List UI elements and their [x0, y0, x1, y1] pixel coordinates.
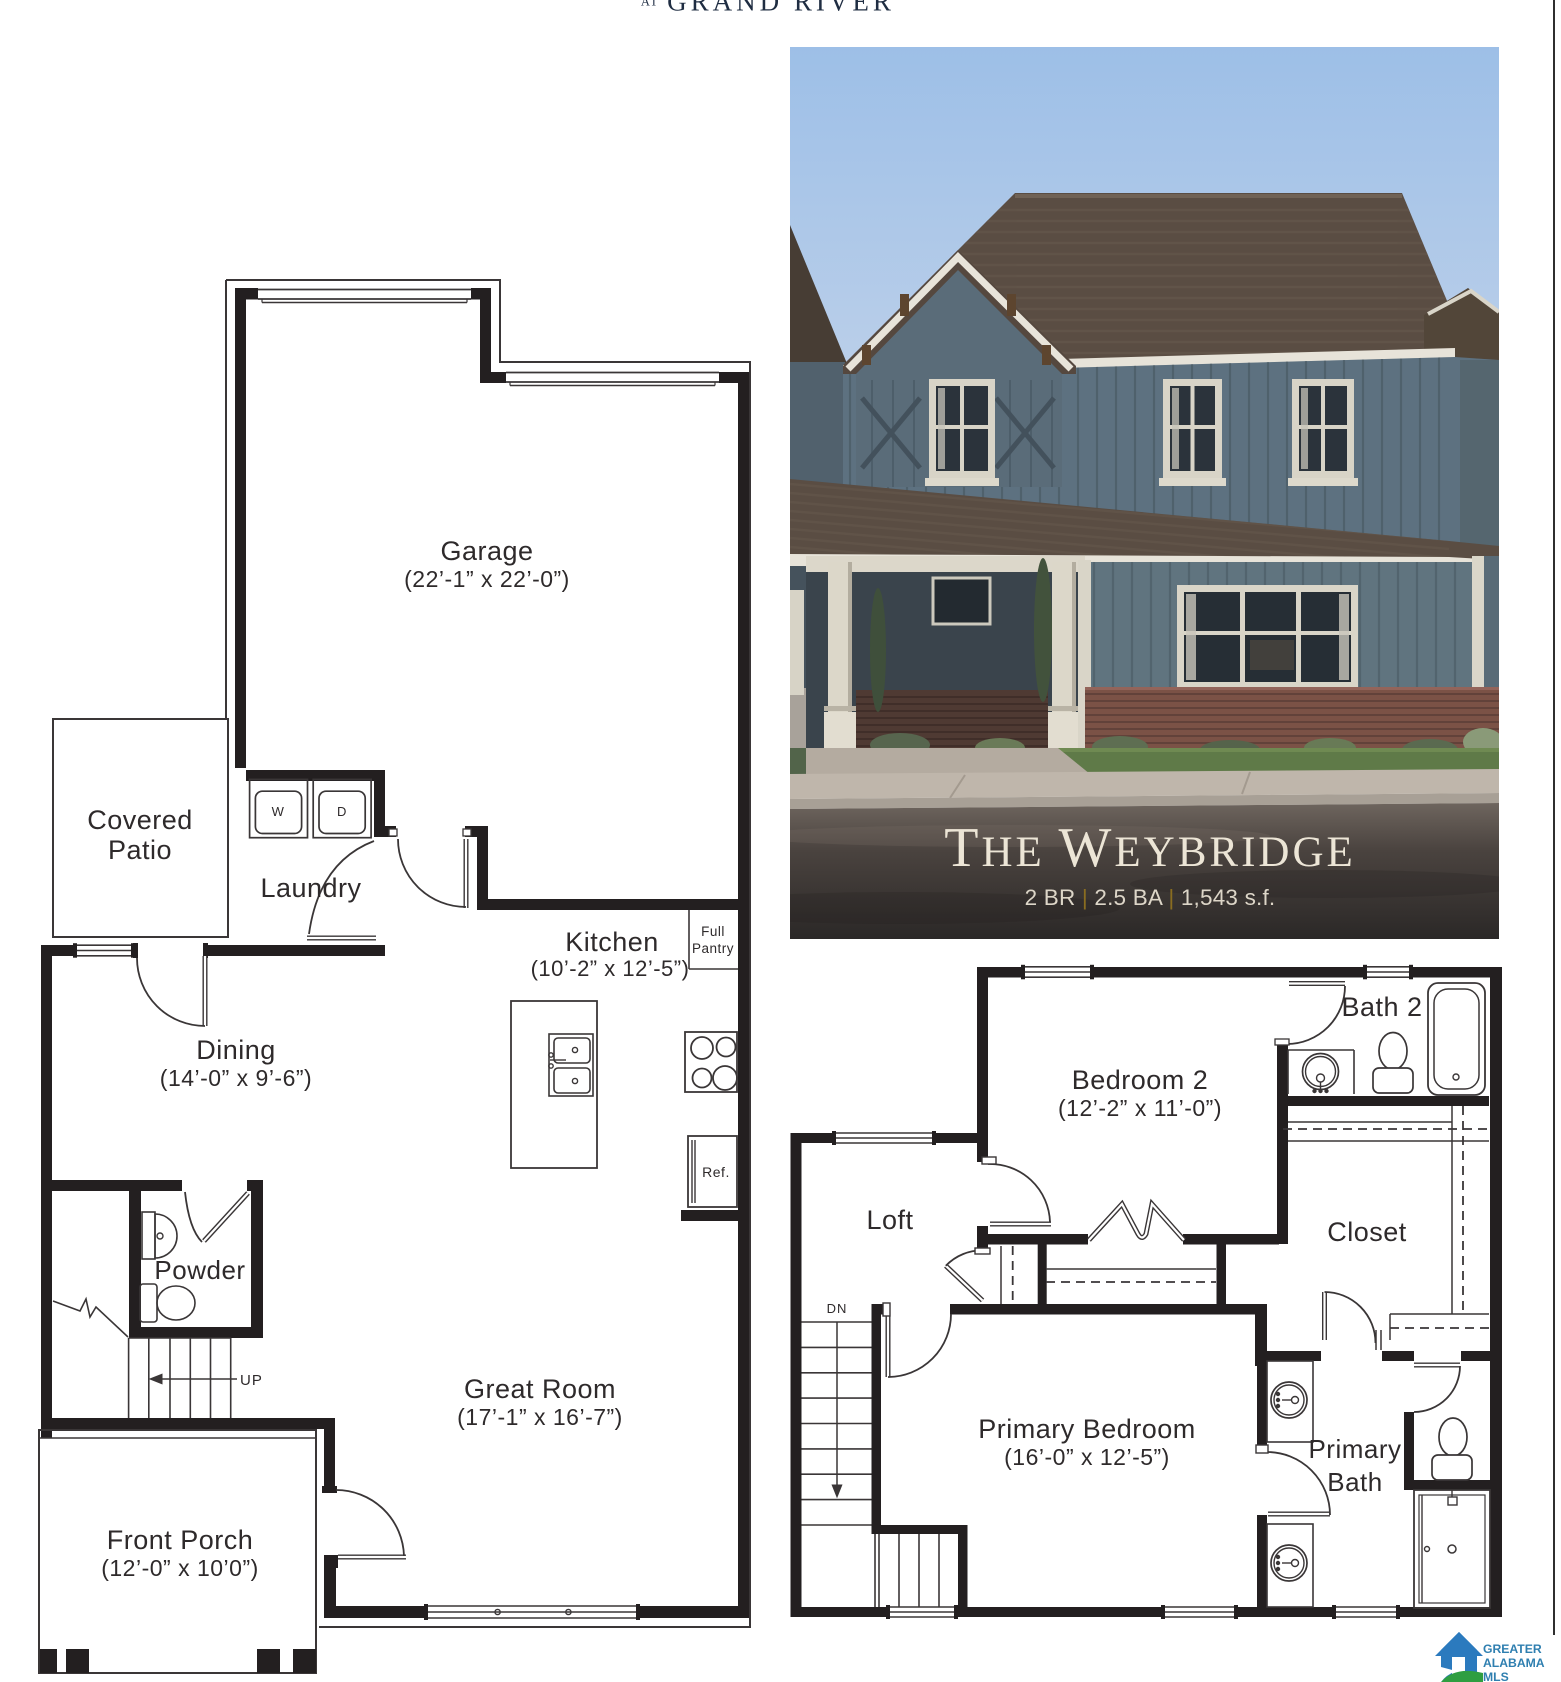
svg-text:(22’-1” x 22’-0”): (22’-1” x 22’-0”) — [404, 566, 570, 592]
svg-text:DN: DN — [827, 1301, 848, 1316]
svg-text:Closet: Closet — [1327, 1217, 1407, 1247]
svg-text:Loft: Loft — [866, 1205, 913, 1235]
svg-text:Front Porch: Front Porch — [107, 1525, 254, 1555]
svg-text:GRAND RIVER: GRAND RIVER — [667, 0, 895, 17]
svg-text:Great Room: Great Room — [464, 1374, 616, 1404]
svg-text:Pantry: Pantry — [692, 941, 734, 956]
svg-text:D: D — [337, 804, 347, 819]
svg-text:Covered: Covered — [87, 805, 193, 835]
svg-text:ALABAMA: ALABAMA — [1483, 1656, 1545, 1670]
svg-text:(14’-0” x 9’-6”): (14’-0” x 9’-6”) — [160, 1065, 312, 1091]
svg-text:Primary Bedroom: Primary Bedroom — [978, 1414, 1196, 1444]
svg-text:Laundry: Laundry — [260, 873, 361, 903]
svg-text:Garage: Garage — [440, 536, 533, 566]
svg-text:W: W — [272, 804, 285, 819]
svg-text:(17’-1” x 16’-7”): (17’-1” x 16’-7”) — [457, 1404, 623, 1430]
svg-text:(12’-0” x 10’0”): (12’-0” x 10’0”) — [101, 1555, 259, 1581]
svg-text:Bath 2: Bath 2 — [1341, 992, 1422, 1022]
svg-text:Full: Full — [701, 924, 725, 939]
svg-text:Patio: Patio — [108, 835, 172, 865]
svg-text:AT: AT — [641, 0, 659, 9]
svg-text:Dining: Dining — [196, 1035, 276, 1065]
svg-text:Bedroom 2: Bedroom 2 — [1072, 1065, 1209, 1095]
svg-text:Powder: Powder — [154, 1255, 245, 1285]
svg-text:UP: UP — [240, 1372, 263, 1389]
svg-text:Primary: Primary — [1308, 1434, 1401, 1464]
svg-text:(12’-2” x 11’-0”): (12’-2” x 11’-0”) — [1058, 1095, 1222, 1121]
svg-text:Kitchen: Kitchen — [565, 927, 659, 957]
svg-text:2 BR | 2.5 BA | 1,543 s.f.: 2 BR | 2.5 BA | 1,543 s.f. — [1025, 885, 1276, 910]
svg-text:GREATER: GREATER — [1483, 1642, 1542, 1656]
svg-text:Ref.: Ref. — [702, 1164, 730, 1180]
svg-text:Bath: Bath — [1327, 1467, 1383, 1497]
svg-text:(10’-2” x 12’-5”): (10’-2” x 12’-5”) — [531, 956, 690, 981]
svg-text:MLS: MLS — [1483, 1670, 1509, 1682]
svg-text:(16’-0” x 12’-5”): (16’-0” x 12’-5”) — [1004, 1444, 1170, 1470]
